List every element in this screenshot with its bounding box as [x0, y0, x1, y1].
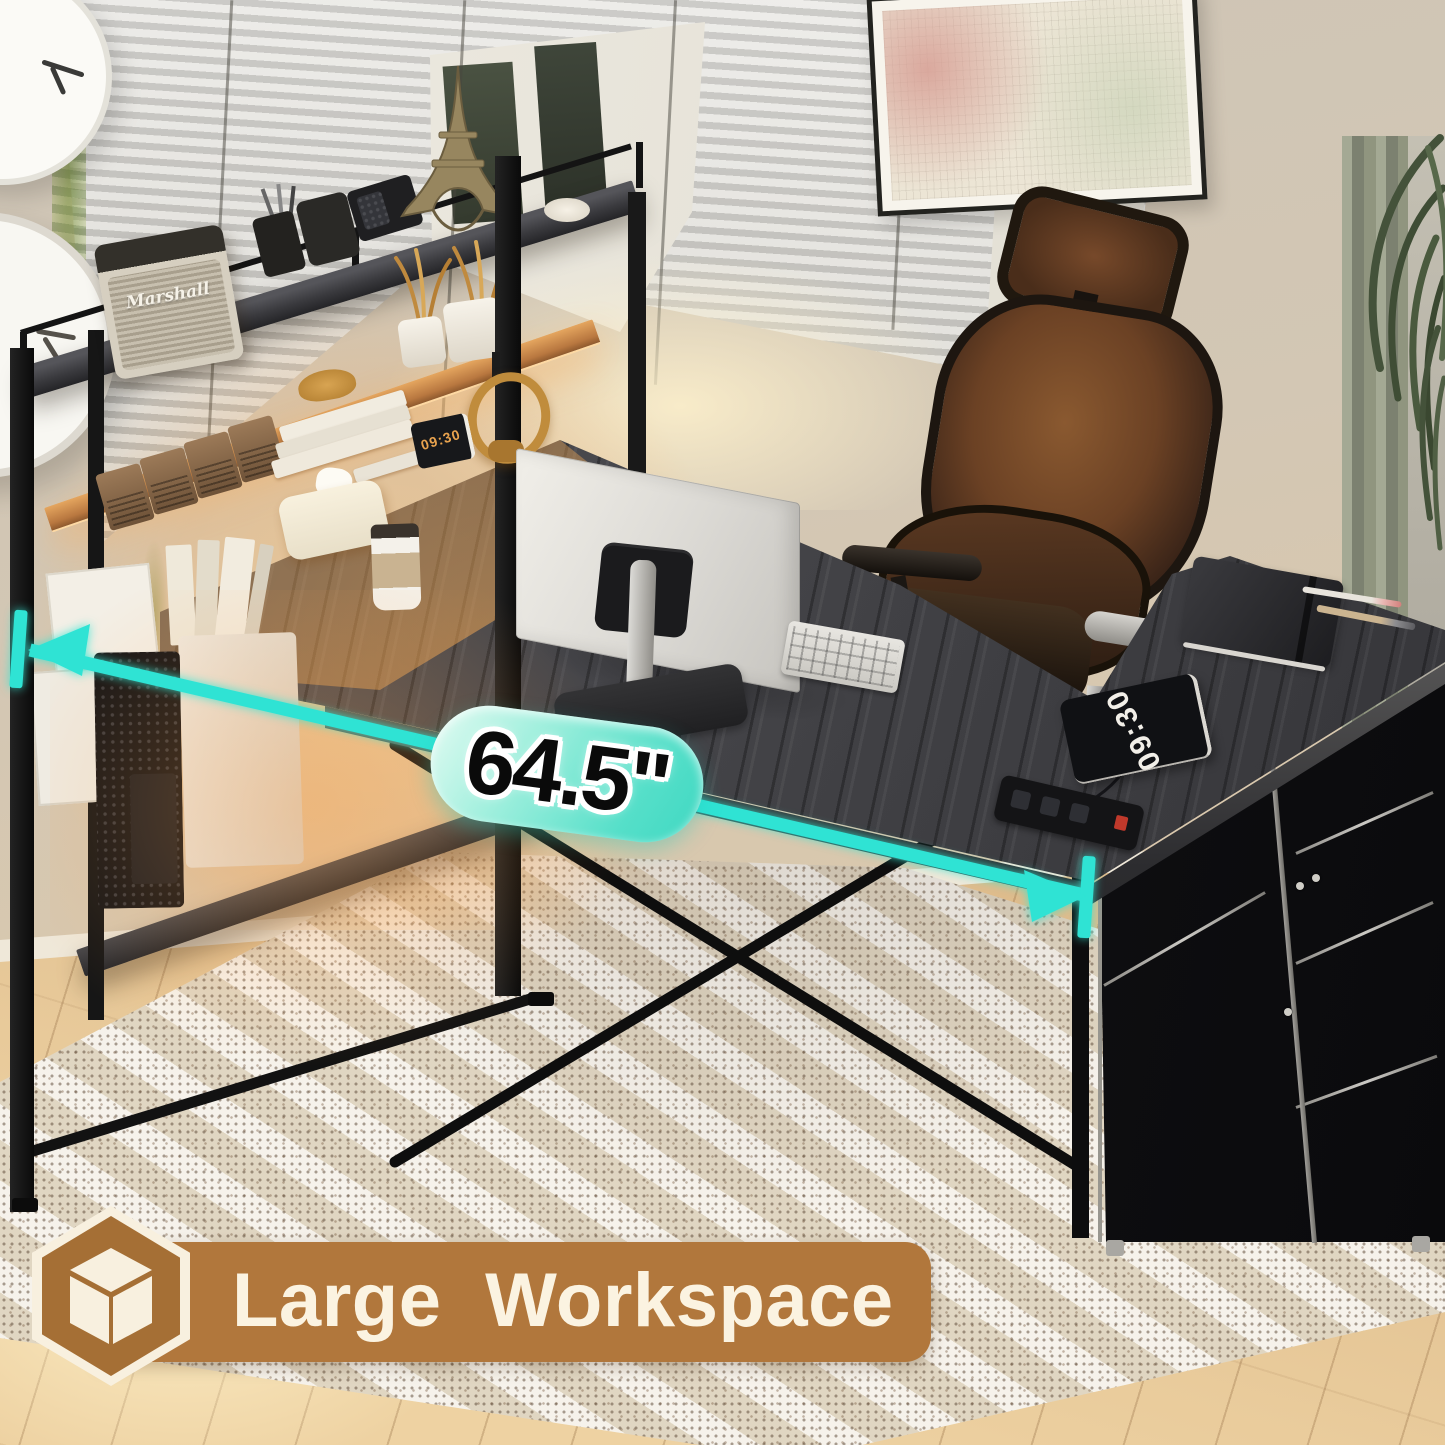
- feature-banner: Large Workspace: [98, 1242, 931, 1362]
- feature-banner-label: Large Workspace: [232, 1257, 894, 1344]
- product-scene: Marshall 09:30: [0, 0, 1445, 1445]
- cube-icon: [70, 1248, 152, 1344]
- measurement-arrow: [0, 0, 1445, 1445]
- measurement-value: 64.5": [460, 710, 675, 839]
